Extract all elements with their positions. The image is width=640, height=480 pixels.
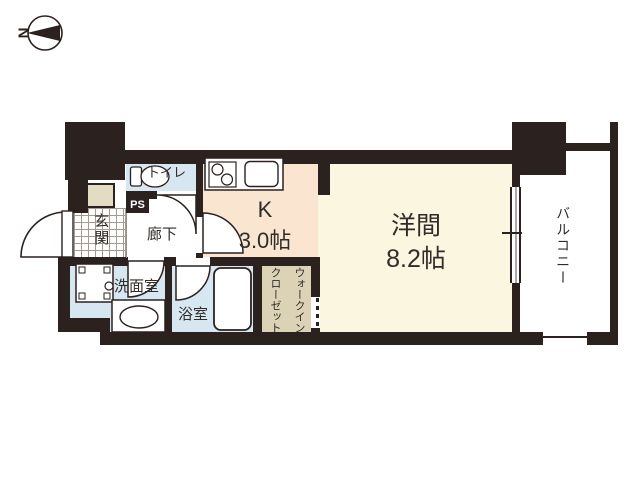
washing-machine-corner [104,267,110,273]
north-compass: N [16,16,63,50]
corridor-label: 廊下 [147,226,177,243]
washing-machine-corner [104,293,110,299]
washroom-label: 洗面室 [114,278,159,295]
western-room-name: 洋間 [320,210,512,243]
washing-machine-corner [79,267,85,273]
kitchen-size: 3.0帖 [210,225,320,256]
walk-in-closet-line1: ウォークイン [287,267,311,332]
bathtub-icon [214,268,251,330]
washing-machine-corner [79,293,85,299]
bathroom-label: 浴室 [178,306,208,323]
toilet-tank-icon [131,167,142,186]
stove-burner-icon [222,174,233,185]
toilet-label: トイレ [147,166,186,181]
compass-north-label: N [16,28,33,39]
vanity-sink-icon [120,306,158,328]
washing-machine-faucet-icon [105,282,113,290]
stove-burner-icon [212,164,223,175]
bathroom-door-swing [176,266,210,300]
walk-in-closet-label: ウォークイン クローゼット [262,267,311,332]
pipe-space-label: PS [130,199,145,211]
walk-in-closet-line2: クローゼット [263,267,287,332]
entrance-door-swing [21,212,66,257]
pipe-space-box: PS [126,197,149,213]
floor-plan: N PS トイレ 玄関 廊下 K 3.0帖 洋間 8.2帖 洗面室 浴室 ウォー… [0,0,640,480]
entrance-door-leaf [62,211,73,257]
western-room-size: 8.2帖 [320,243,512,276]
balcony-label: バルコニー [555,206,571,286]
kitchen-sink-icon [245,162,278,187]
entrance-label: 玄関 [92,213,109,247]
western-room-label: 洋間 8.2帖 [320,210,512,276]
kitchen-name: K [210,194,320,225]
kitchen-label: K 3.0帖 [210,194,320,256]
